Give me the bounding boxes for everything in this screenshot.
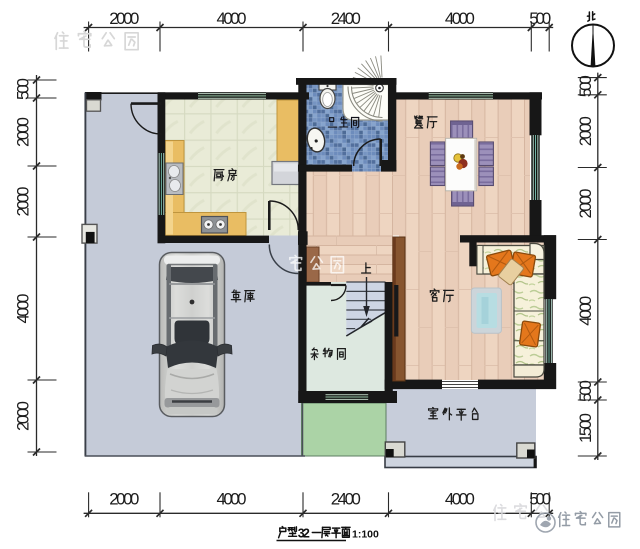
svg-text:2000: 2000 [14, 117, 33, 147]
svg-text:2000: 2000 [14, 187, 33, 217]
svg-text:1:100: 1:100 [352, 529, 379, 541]
svg-text:2000: 2000 [14, 401, 33, 431]
svg-text:2000: 2000 [109, 9, 139, 28]
svg-text:4000: 4000 [14, 294, 33, 324]
svg-text:500: 500 [576, 380, 595, 402]
svg-text:1500: 1500 [576, 413, 595, 443]
svg-text:4000: 4000 [576, 296, 595, 326]
svg-text:500: 500 [576, 75, 595, 97]
svg-text:500: 500 [529, 9, 551, 28]
svg-text:4000: 4000 [217, 490, 247, 509]
svg-text:4000: 4000 [445, 490, 475, 509]
svg-text:2000: 2000 [109, 490, 139, 509]
svg-text:4000: 4000 [445, 9, 475, 28]
svg-text:32: 32 [298, 527, 310, 541]
svg-text:2400: 2400 [331, 490, 361, 509]
svg-text:500: 500 [14, 78, 33, 100]
svg-text:2400: 2400 [331, 9, 361, 28]
svg-text:2000: 2000 [576, 189, 595, 219]
svg-text:4000: 4000 [217, 9, 247, 28]
svg-text:2000: 2000 [576, 116, 595, 146]
